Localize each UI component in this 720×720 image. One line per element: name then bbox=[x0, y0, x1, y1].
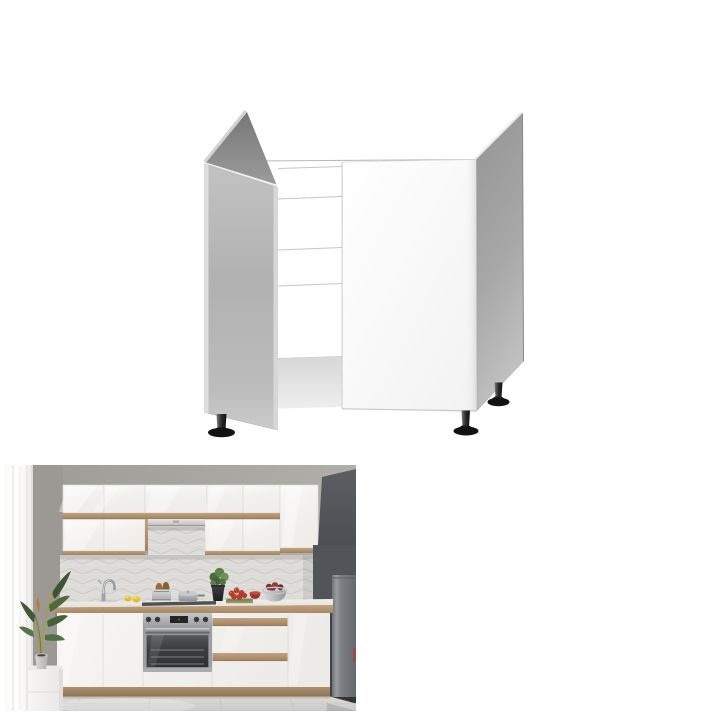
built-in-oven bbox=[143, 613, 212, 672]
cabinet-render-svg bbox=[0, 0, 720, 460]
pedestal bbox=[28, 668, 63, 711]
drawer-wood-strip bbox=[213, 653, 288, 661]
floor bbox=[45, 697, 356, 712]
open-door bbox=[205, 163, 278, 431]
oven-knob bbox=[194, 617, 199, 622]
oven-knob bbox=[155, 617, 160, 622]
front-panel-shade bbox=[466, 160, 476, 411]
fridge bbox=[332, 575, 356, 700]
wall-door-lower bbox=[243, 519, 280, 551]
red-reflection bbox=[353, 648, 356, 662]
wood-handle-strip bbox=[63, 513, 280, 519]
right-side-panel bbox=[477, 114, 524, 411]
door-right-edge bbox=[274, 186, 278, 430]
cabinet-bottom-shelf bbox=[278, 357, 342, 409]
wall-door bbox=[243, 485, 280, 513]
kitchen-scene-photo bbox=[5, 465, 356, 711]
wood-bottom-trim bbox=[280, 548, 315, 553]
kitchen-photo-svg bbox=[5, 465, 356, 711]
door-left-highlight bbox=[205, 164, 209, 414]
drawer-wood-strip bbox=[213, 618, 288, 626]
cabinet-3d-render bbox=[0, 0, 720, 460]
wall-door-lower bbox=[104, 519, 145, 551]
plinth bbox=[60, 687, 330, 697]
product-composite-image bbox=[0, 0, 720, 720]
oven-knob bbox=[203, 617, 208, 622]
wood-bottom-trim bbox=[205, 551, 280, 555]
base-cabinets bbox=[57, 613, 330, 689]
range-hood bbox=[148, 519, 205, 526]
cabinet-interior-rails bbox=[278, 167, 342, 359]
oven-handle bbox=[146, 628, 210, 632]
wood-bottom-trim bbox=[63, 551, 145, 555]
oven-knob bbox=[146, 617, 151, 622]
door-face bbox=[205, 164, 278, 430]
foot-front-right bbox=[454, 411, 479, 436]
cabinet-front-panel bbox=[343, 160, 477, 411]
hood-logo bbox=[173, 521, 179, 523]
